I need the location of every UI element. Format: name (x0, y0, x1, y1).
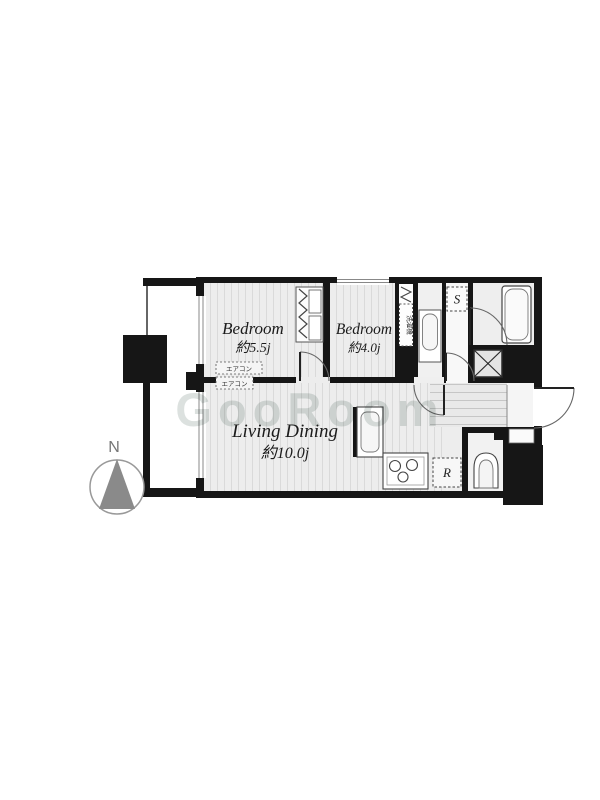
bedroom1-label: Bedroom (222, 319, 284, 338)
toilet (474, 453, 498, 488)
living-label: Living Dining (231, 421, 338, 442)
window (196, 296, 206, 364)
bedroom1-size: 約5.5j (235, 340, 270, 356)
storage-label: S (454, 292, 461, 307)
bedroom2-size: 約4.0j (348, 340, 381, 355)
stove (383, 453, 428, 489)
compass: N (90, 439, 144, 514)
wall-block (503, 445, 543, 505)
wall-segment (143, 383, 150, 497)
wall-segment (462, 427, 468, 491)
living-size: 約10.0j (261, 444, 310, 462)
aircon-label: エアコン (226, 365, 252, 373)
floor-plan-page: 洗濯機 S R (0, 0, 600, 800)
window (337, 277, 389, 285)
washer-label: 洗濯機 (406, 315, 415, 335)
refrigerator-label: R (442, 465, 451, 480)
wall-segment (143, 488, 200, 497)
compass-north-label: N (108, 439, 120, 456)
wall-segment (494, 427, 510, 440)
washbasin-bowl (423, 314, 438, 350)
entrance-opening (533, 388, 543, 426)
genkan-step (507, 383, 534, 427)
closet-shelf (309, 290, 321, 313)
closet-shelf (309, 316, 321, 340)
wall-segment (143, 278, 200, 286)
floor-plan: 洗濯機 S R (0, 0, 600, 800)
shoe-cabinet (509, 429, 534, 443)
pipe-shaft-icon (474, 350, 502, 377)
pillar (123, 335, 167, 383)
bathtub-inner (505, 289, 528, 340)
bedroom2-label: Bedroom (336, 321, 392, 338)
door-opening (446, 377, 468, 383)
